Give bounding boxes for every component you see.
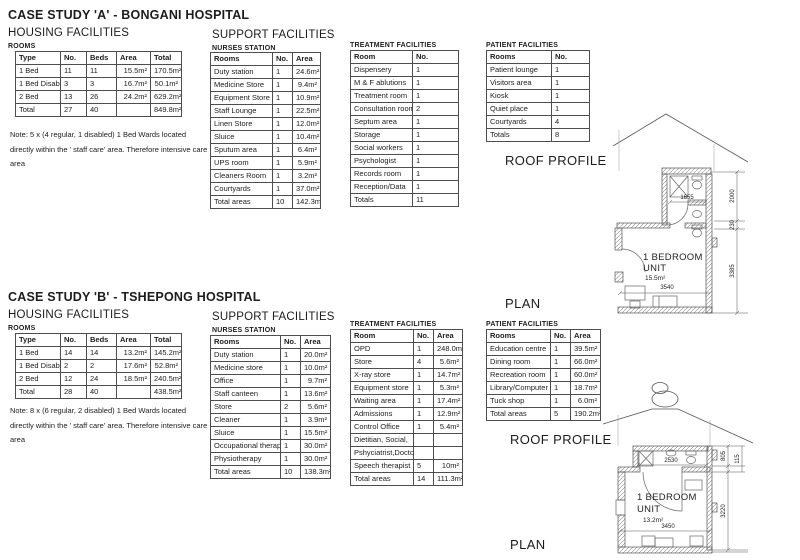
column-header: Area [571,330,601,343]
table-cell: 3.2m² [293,170,321,183]
table-cell: 248.0m² [434,343,463,356]
table-cell: 16.7m² [117,78,151,91]
table-cell: 10 [273,196,293,209]
table-cell: 10.9m² [293,92,321,105]
table-row: Cleaner13.9m² [211,414,331,427]
table-row: 2 Bed122418.5m²240.5m² [16,373,182,386]
column-header: No. [61,334,87,347]
table-row: Treatment room1 [351,90,459,103]
table-cell: 170.5m² [151,65,182,78]
table-row: Total2840438.5m² [16,386,182,399]
dim-label: 230 [730,219,736,230]
entry-door-arc [622,249,645,272]
table-cell: 1 [413,64,459,77]
table-cell: Store [351,356,414,369]
unit-label: UNIT [637,504,660,515]
table-cell: Storage [351,129,413,142]
table-cell: 1 [273,118,293,131]
table-cell: Social workers [351,142,413,155]
table-cell: Totals [351,194,413,207]
table-cell: 27 [61,104,87,117]
table-cell: Sputum area [211,144,273,157]
table-cell: 24.2m² [117,91,151,104]
table-cell: 1 [413,116,459,129]
table-row: Psychologist1 [351,155,459,168]
table-cell: 17.6m² [117,360,151,373]
table-cell: 849.8m² [151,104,182,117]
table-cell: 111.3m² [434,473,463,486]
note-line: area [10,433,207,448]
table-cell: 2 [87,360,117,373]
dim-label: 3220 [721,504,727,518]
case-b-drawing: 2530 3450 805 115 3220 1 BEDROOM UNIT 13… [540,360,800,560]
unit-label: 1 BEDROOM [637,492,697,503]
case-a-support-table: RoomsNo.AreaDuty station124.6m²Medicine … [210,52,321,209]
table-cell: 24.6m² [293,66,321,79]
table-cell: 1 [414,408,434,421]
table-row: Septum area1 [351,116,459,129]
table-cell: 1 [281,414,301,427]
table-cell: 1 [413,168,459,181]
table-cell: Total [16,386,61,399]
table-cell: Visitors area [487,77,552,90]
table-cell: 1 [551,343,571,356]
table-cell: 5 [414,460,434,473]
table-row: Totals11 [351,194,459,207]
table-row: Cleaners Room13.2m² [211,170,321,183]
table-cell: 138.3m² [301,466,331,479]
table-cell: 1 [552,64,590,77]
table-cell: 3.9m² [301,414,331,427]
table-cell: Patient lounge [487,64,552,77]
table-row: Dietitian, Social, [351,434,463,447]
table-cell: 1 [273,157,293,170]
table-row: UPS room15.9m² [211,157,321,170]
table-cell: Septum area [351,116,413,129]
table-cell: 39.5m² [571,343,601,356]
table-cell: 1 [414,369,434,382]
column-header: Room [351,51,413,64]
table-cell: 12 [61,373,87,386]
case-b-support-table: RoomsNo.AreaDuty station120.0m²Medicine … [210,335,331,479]
table-cell: Dietitian, Social, [351,434,414,447]
table-row: Duty station124.6m² [211,66,321,79]
column-header: Total [151,334,182,347]
table-row: Control Office15.4m² [351,421,463,434]
table-row: Waiting area117.4m² [351,395,463,408]
table-row: Courtyards137.0m² [211,183,321,196]
dim-label: 3450 [661,524,675,530]
column-header: Beds [87,52,117,65]
table-cell: 5.3m² [434,382,463,395]
table-cell: 142.3m² [293,196,321,209]
case-b-note: Note: 8 x (6 regular, 2 disabled) 1 Bed … [10,404,207,448]
table-row: Speech therapist510m² [351,460,463,473]
table-cell: Pshyciatrist,Doctor, [351,447,414,460]
table-cell: 1 [413,142,459,155]
table-row: M & F ablutions1 [351,77,459,90]
table-cell: 1 Bed [16,347,61,360]
unit-label: UNIT [643,263,666,274]
table-cell: 1 [413,90,459,103]
dim-label: 2000 [730,189,736,203]
table-cell: Education centre [487,343,551,356]
table-cell: 2 Bed [16,373,61,386]
column-header: Area [117,334,151,347]
case-b-rooms-label: ROOMS [8,325,35,332]
case-b-treatment-label: TREATMENT FACILITIES [350,321,436,328]
dim-label: 805 [721,450,727,461]
column-header: Rooms [211,336,281,349]
unit-label: 1 BEDROOM [643,252,703,263]
table-row: Total areas14111.3m² [351,473,463,486]
table-cell: Total [16,104,61,117]
column-header: Rooms [487,51,552,64]
table-cell: Medicine Store [211,79,273,92]
table-cell: Equipment Store [211,92,273,105]
table-cell: Total areas [211,466,281,479]
table-row: Staff canteen113.6m² [211,388,331,401]
header-row: RoomNo. [351,51,459,64]
dim-label: 115 [735,454,741,464]
table-cell [414,447,434,460]
case-b-nurses-station-label: NURSES STATION [212,327,276,334]
table-row: Total areas10142.3m² [211,196,321,209]
table-cell: 22.5m² [293,105,321,118]
table-cell: Equipment store [351,382,414,395]
table-row: Store25.6m² [211,401,331,414]
note-line: directly within the ' staff care' area. … [10,419,207,434]
table-cell: Occupational therapy [211,440,281,453]
table-cell: 5.4m² [434,421,463,434]
table-row: X-ray store114.7m² [351,369,463,382]
column-header: Beds [87,334,117,347]
table-row: Records room1 [351,168,459,181]
table-cell: 1 [273,79,293,92]
table-cell: 4 [414,356,434,369]
case-b-patient-label: PATIENT FACILITIES [486,321,558,328]
table-cell: 1 [281,388,301,401]
table-cell: 10.0m² [301,362,331,375]
table-cell: 50.1m² [151,78,182,91]
table-cell: 20.0m² [301,349,331,362]
table-cell: 1 [413,129,459,142]
table-row: Sputum area16.4m² [211,144,321,157]
table-row: 1 Bed111115.5m²170.5m² [16,65,182,78]
dim-label: 2530 [664,458,678,464]
table-cell: Staff canteen [211,388,281,401]
column-header: No. [273,53,293,66]
case-a-treatment-table: RoomNo.Dispensery1M & F ablutions1Treatm… [350,50,459,207]
table-cell: 13.2m² [117,347,151,360]
table-cell: 1 [273,92,293,105]
column-header: Type [16,334,61,347]
table-row: Total areas10138.3m² [211,466,331,479]
column-header: No. [551,330,571,343]
table-cell: Dispensery [351,64,413,77]
table-cell: Reception/Data [351,181,413,194]
table-cell: Physiotherapy [211,453,281,466]
roof-profile-b [603,383,753,444]
dim-label: 3385 [730,264,736,278]
table-cell: 12.9m² [434,408,463,421]
table-cell: 9.4m² [293,79,321,92]
case-a-rooms-label: ROOMS [8,43,35,50]
case-a-treatment-label: TREATMENT FACILITIES [350,42,436,49]
column-header: Rooms [487,330,551,343]
table-cell: X-ray store [351,369,414,382]
column-header: No. [552,51,590,64]
case-b-treatment-table: RoomNo.AreaOPD1248.0m²Store45.6m²X-ray s… [350,329,463,486]
table-cell: 145.2m² [151,347,182,360]
table-cell: 1 [273,144,293,157]
case-b-housing-heading: HOUSING FACILITIES [8,309,129,321]
table-row: Storage1 [351,129,459,142]
table-cell: 1 [414,343,434,356]
column-header: No. [413,51,459,64]
table-cell: 9.7m² [301,375,331,388]
column-header: Total [151,52,182,65]
table-cell: 52.8m² [151,360,182,373]
table-cell [434,434,463,447]
table-cell: 14 [87,347,117,360]
table-cell: 11 [413,194,459,207]
table-row: Reception/Data1 [351,181,459,194]
table-cell: 1 Bed [16,65,61,78]
table-cell: 6.4m² [293,144,321,157]
roof-profile-a [613,114,748,162]
column-header: Type [16,52,61,65]
table-cell: Waiting area [351,395,414,408]
table-row: Pshyciatrist,Doctor, [351,447,463,460]
table-cell: 240.5m² [151,373,182,386]
table-cell: 15.5m² [117,65,151,78]
unit-area-label: 13.2m² [643,517,664,524]
extension-lines-a [619,130,714,171]
table-cell: 5.9m² [293,157,321,170]
column-header: No. [414,330,434,343]
case-a-note: Note: 5 x (4 regular, 1 disabled) 1 Bed … [10,128,207,172]
table-row: Medicine store110.0m² [211,362,331,375]
table-cell: 11 [87,65,117,78]
table-row: Duty station120.0m² [211,349,331,362]
column-header: Area [117,52,151,65]
table-cell: Admissions [351,408,414,421]
table-cell: Sluice [211,427,281,440]
table-cell: 28 [61,386,87,399]
table-cell [117,104,151,117]
note-line: directly within the ' staff care' area. … [10,143,207,158]
table-cell: M & F ablutions [351,77,413,90]
table-row: 1 Bed141413.2m²145.2m² [16,347,182,360]
table-cell: Cleaners Room [211,170,273,183]
table-cell: 11 [61,65,87,78]
table-cell: 15.5m² [301,427,331,440]
table-row: Social workers1 [351,142,459,155]
table-cell: Records room [351,168,413,181]
case-b-support-heading: SUPPORT FACILITIES [212,311,335,323]
table-cell: Office [211,375,281,388]
floor-plan-a-dimensions [618,170,748,315]
table-cell: 1 [281,349,301,362]
header-row: RoomsNo. [487,51,590,64]
table-cell: Duty station [211,349,281,362]
table-cell: Psychologist [351,155,413,168]
table-cell: 1 [281,440,301,453]
column-header: No. [281,336,301,349]
table-cell: 1 [414,395,434,408]
table-cell: 17.4m² [434,395,463,408]
dim-label: 1655 [680,195,694,201]
table-cell: Speech therapist [351,460,414,473]
table-cell: Consultation room [351,103,413,116]
table-cell: Duty station [211,66,273,79]
table-row: Visitors area1 [487,77,590,90]
header-row: TypeNo.BedsAreaTotal [16,334,182,347]
table-cell: Store [211,401,281,414]
table-cell: Sluice [211,131,273,144]
table-cell: 24 [87,373,117,386]
table-row: OPD1248.0m² [351,343,463,356]
table-cell [414,434,434,447]
case-a-nurses-station-label: NURSES STATION [212,45,276,52]
table-cell: Total areas [211,196,273,209]
table-row: Office19.7m² [211,375,331,388]
table-cell: 10.4m² [293,131,321,144]
note-line: Note: 8 x (6 regular, 2 disabled) 1 Bed … [10,404,207,419]
table-cell: 3 [87,78,117,91]
note-line: Note: 5 x (4 regular, 1 disabled) 1 Bed … [10,128,207,143]
table-cell: 1 [273,66,293,79]
table-row: Physiotherapy130.0m² [211,453,331,466]
page: { "case_a": { "title": "CASE STUDY 'A' -… [0,0,800,560]
table-row: 2 Bed132624.2m²629.2m² [16,91,182,104]
table-cell: Total areas [351,473,414,486]
table-row: 1 Bed Disabled3316.7m²50.1m² [16,78,182,91]
table-row: Sluice110.4m² [211,131,321,144]
table-cell: Control Office [351,421,414,434]
table-cell: 2 Bed [16,91,61,104]
table-row: Store45.6m² [351,356,463,369]
table-row: Education centre139.5m² [487,343,601,356]
table-cell: 37.0m² [293,183,321,196]
table-row: Occupational therapy130.0m² [211,440,331,453]
table-cell: 18.5m² [117,373,151,386]
table-row: Total2740849.8m² [16,104,182,117]
table-cell: 40 [87,386,117,399]
header-row: RoomsNo.Area [211,53,321,66]
column-header: Rooms [211,53,273,66]
table-cell: 12.0m² [293,118,321,131]
column-header: No. [61,52,87,65]
table-cell: Cleaner [211,414,281,427]
table-cell: 1 [413,77,459,90]
table-cell: 1 Bed Disabled [16,360,61,373]
table-cell: 629.2m² [151,91,182,104]
table-cell: 1 [552,77,590,90]
table-row: Consultation room2 [351,103,459,116]
table-cell: 2 [281,401,301,414]
table-cell: 438.5m² [151,386,182,399]
case-a-plan-label: PLAN [505,296,541,311]
table-row: Linen Store112.0m² [211,118,321,131]
table-cell: 1 [273,131,293,144]
bathroom-door-arc [667,204,688,225]
table-cell: 1 [273,105,293,118]
table-row: Staff Lounge122.5m² [211,105,321,118]
extension-lines-b [618,415,710,446]
table-cell: 40 [87,104,117,117]
table-cell: Staff Lounge [211,105,273,118]
table-row: Admissions112.9m² [351,408,463,421]
table-cell: 1 [414,421,434,434]
window [616,500,625,515]
table-cell: 13 [61,91,87,104]
table-cell: 1 [413,181,459,194]
table-cell: 2 [61,360,87,373]
table-cell: Medicine store [211,362,281,375]
header-row: RoomsNo.Area [211,336,331,349]
table-cell: 1 [281,427,301,440]
case-a-housing-heading: HOUSING FACILITIES [8,27,129,39]
header-row: RoomsNo.Area [487,330,601,343]
case-a-patient-label: PATIENT FACILITIES [486,42,558,49]
table-cell: 1 [413,155,459,168]
header-row: RoomNo.Area [351,330,463,343]
table-cell: 26 [87,91,117,104]
table-cell: 5.6m² [434,356,463,369]
table-cell: 5.6m² [301,401,331,414]
table-cell: 13.6m² [301,388,331,401]
column-header: Area [434,330,463,343]
unit-area-label: 15.5m² [645,275,666,282]
table-cell: 1 [281,375,301,388]
table-row: Dispensery1 [351,64,459,77]
table-cell: 1 Bed Disabled [16,78,61,91]
table-cell: 14 [61,347,87,360]
dim-label: 3540 [660,285,674,291]
table-cell [434,447,463,460]
case-a-drawing: 1655 3540 2000 230 3385 1 BEDROOM UNIT 1… [540,95,800,320]
table-cell: 1 [273,170,293,183]
table-cell [117,386,151,399]
column-header: Room [351,330,414,343]
table-cell: Treatment room [351,90,413,103]
table-cell: OPD [351,343,414,356]
table-cell: 3 [61,78,87,91]
table-row: Equipment store15.3m² [351,382,463,395]
table-cell: 14 [414,473,434,486]
table-cell: 1 [281,362,301,375]
table-cell: 1 [281,453,301,466]
table-row: Patient lounge1 [487,64,590,77]
table-cell: 1 [273,183,293,196]
case-b-title: CASE STUDY 'B' - TSHEPONG HOSPITAL [8,290,261,304]
table-cell: 30.0m² [301,440,331,453]
table-cell: 14.7m² [434,369,463,382]
table-cell: UPS room [211,157,273,170]
table-cell: 30.0m² [301,453,331,466]
table-cell: 1 [414,382,434,395]
floor-plan-a-walls [615,168,717,313]
note-line: area [10,157,207,172]
column-header: Area [301,336,331,349]
table-row: Medicine Store19.4m² [211,79,321,92]
table-row: Equipment Store110.9m² [211,92,321,105]
table-cell: 10 [281,466,301,479]
table-cell: Linen Store [211,118,273,131]
table-cell: 2 [413,103,459,116]
